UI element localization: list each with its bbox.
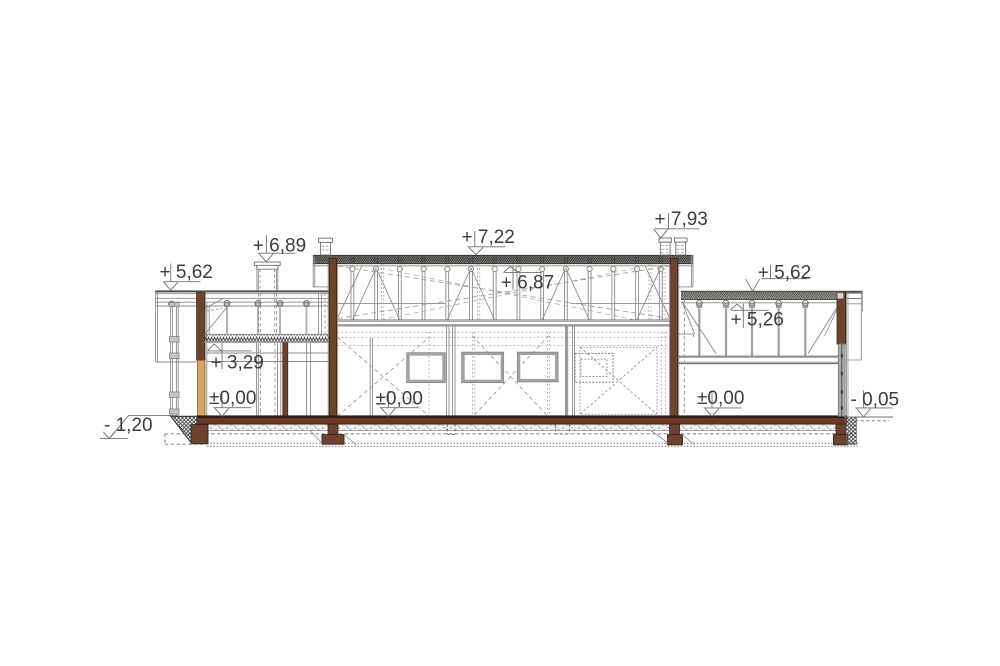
svg-text:+ 6,87: + 6,87 [501,272,554,293]
svg-text:+ 5,62: + 5,62 [160,262,213,283]
svg-text:+ 5,26: + 5,26 [731,309,784,330]
svg-text:- 0,05: - 0,05 [851,390,900,411]
svg-text:+ 7,93: + 7,93 [655,209,708,230]
svg-text:±0,00: ±0,00 [376,389,423,410]
svg-text:- 1,20: - 1,20 [104,415,153,436]
svg-text:±0,00: ±0,00 [209,388,256,409]
svg-text:+ 3,29: + 3,29 [211,352,264,373]
svg-text:+ 7,22: + 7,22 [462,227,515,248]
svg-text:+ 6,89: + 6,89 [253,235,306,256]
svg-text:+ 5,62: + 5,62 [758,263,811,284]
svg-text:±0,00: ±0,00 [697,388,744,409]
